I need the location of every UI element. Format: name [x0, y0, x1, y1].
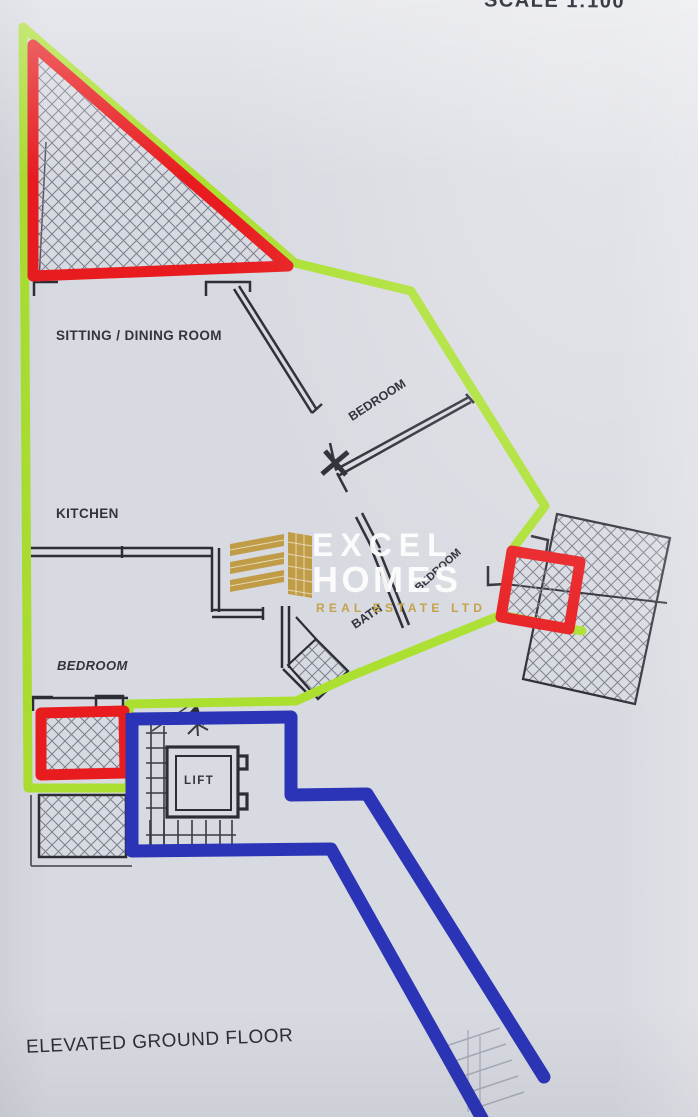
red-square-right: [501, 551, 580, 629]
red-square-left: [41, 711, 125, 775]
scale-label: SCALE 1:100: [484, 0, 625, 14]
room-label-kitchen: KITCHEN: [56, 506, 119, 521]
room-label-sitting-dining: SITTING / DINING ROOM: [56, 328, 222, 343]
floorplan-drawing: [0, 0, 698, 1117]
room-label-lift: LIFT: [184, 775, 214, 787]
lower-yard-hatched: [31, 795, 132, 866]
room-label-bedroom-left: BEDROOM: [57, 658, 128, 673]
floorplan-page: SCALE 1:100 SITTING / DINING ROOM KITCHE…: [0, 0, 698, 1117]
